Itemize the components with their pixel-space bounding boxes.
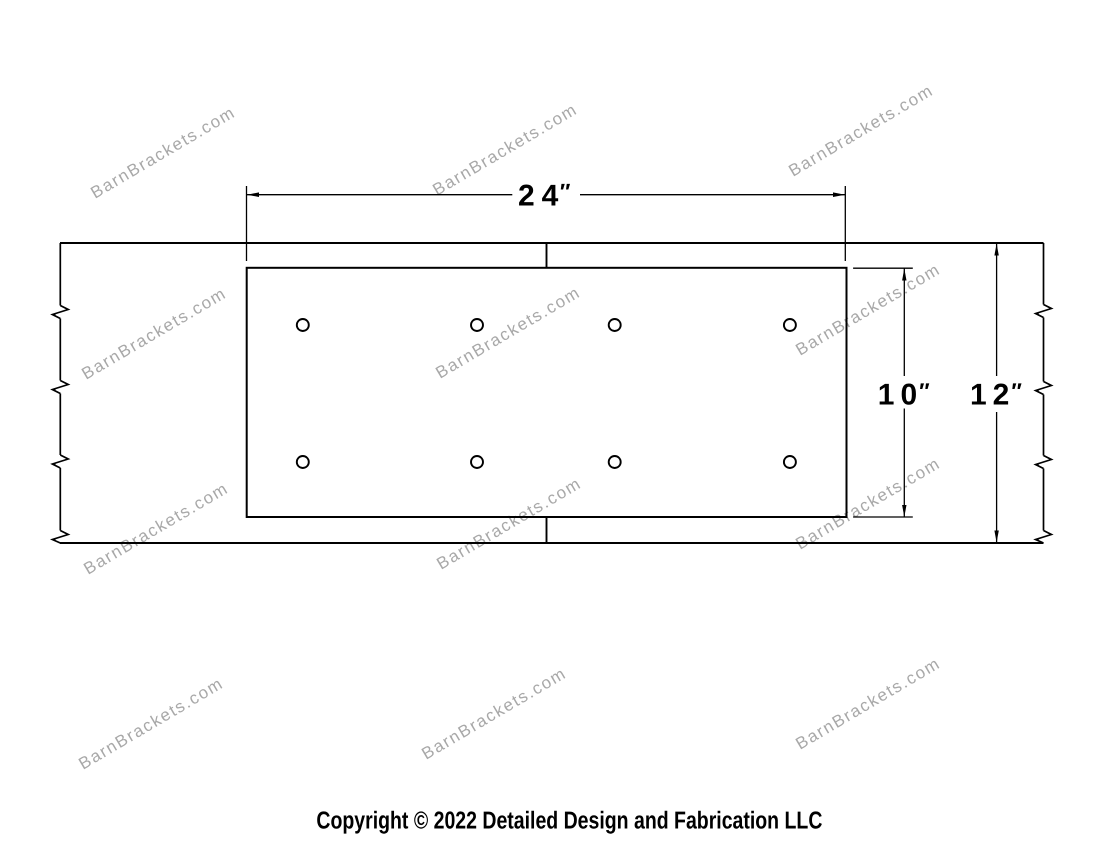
svg-text:Copyright © 2022 Detailed Desi: Copyright © 2022 Detailed Design and Fab… (316, 808, 822, 835)
svg-text:24″: 24″ (518, 179, 571, 212)
svg-text:12″: 12″ (970, 378, 1022, 411)
svg-text:10″: 10″ (878, 378, 930, 411)
